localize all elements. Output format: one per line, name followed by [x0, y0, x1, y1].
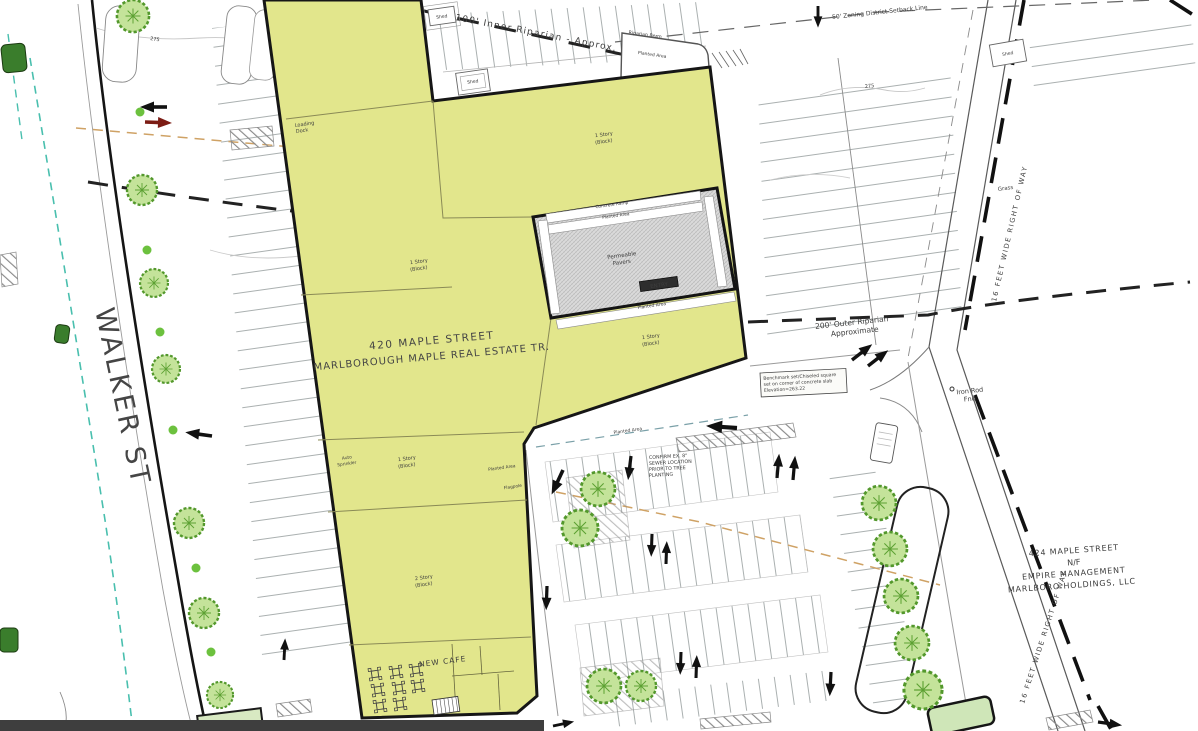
- tree-icon: [152, 355, 180, 383]
- benchmark-note: Benchmark set/Chiseled square set on cor…: [760, 368, 847, 396]
- shrub-icon: [54, 324, 70, 344]
- tree-icon: [207, 682, 233, 708]
- tree-icon: [581, 472, 615, 506]
- tree-icon: [904, 671, 942, 709]
- tree-icon: [895, 626, 929, 660]
- tree-icon: [884, 579, 918, 613]
- iron-rod-label: Fnd: [963, 394, 976, 403]
- tree-icon: [873, 532, 907, 566]
- tree-icon: [189, 598, 219, 628]
- site-plan-drawing: ENTRY: [0, 0, 1198, 731]
- tree-icon: [626, 671, 656, 701]
- shrub-icon: [0, 628, 18, 652]
- shrub-icon: [1, 43, 28, 73]
- tree-icon: [587, 669, 621, 703]
- bottom-bar[interactable]: [0, 720, 544, 731]
- tree-icon: [117, 0, 149, 32]
- tree-icon: [127, 175, 157, 205]
- cafe-stair: [432, 696, 460, 714]
- tree-icon: [862, 486, 896, 520]
- tree-icon: [562, 510, 598, 546]
- contour-label: 275: [865, 83, 875, 90]
- tree-icon: [140, 269, 168, 297]
- site-plan-screenshot: ENTRY: [0, 0, 1198, 731]
- neighbor-parcel-label: N/F: [1067, 558, 1081, 568]
- tree-icon: [174, 508, 204, 538]
